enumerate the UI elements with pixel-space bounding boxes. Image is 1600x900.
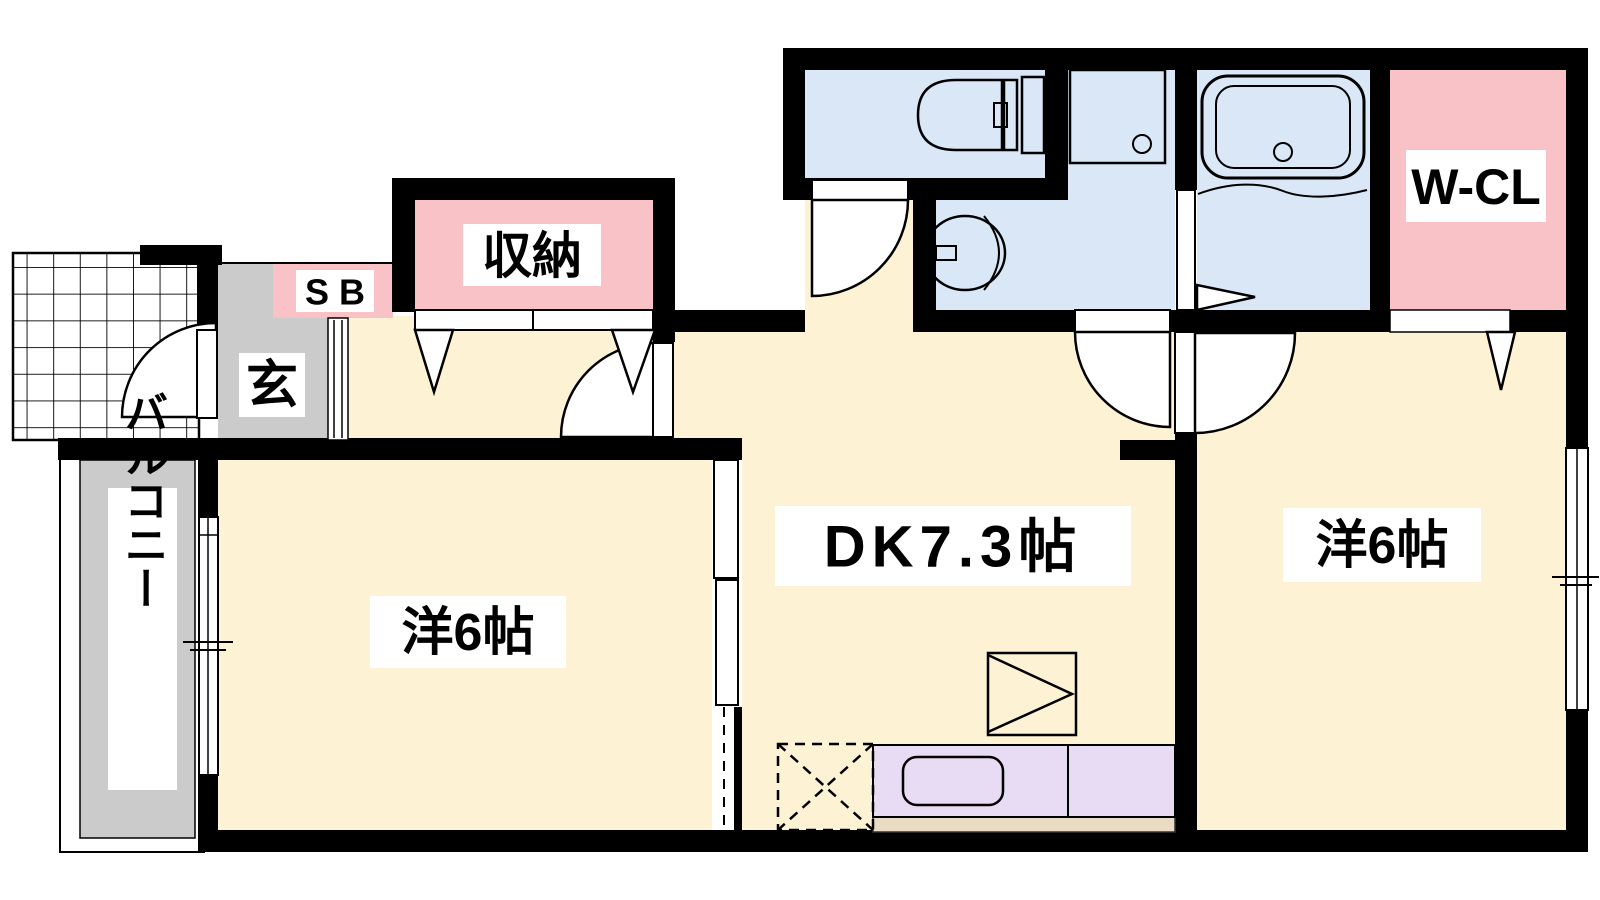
- dining-kitchen-label: DK7.3帖: [824, 515, 1082, 580]
- walk-in-closet-label: W-CL: [1411, 159, 1541, 215]
- entry-partition-door: [328, 318, 348, 440]
- wall-segment: [198, 775, 218, 832]
- wall-segment: [1045, 70, 1068, 178]
- balcony-label: バルコニー: [118, 390, 167, 610]
- wall-segment: [1120, 440, 1175, 460]
- wall-segment: [1175, 48, 1197, 190]
- wall-segment: [1175, 433, 1197, 832]
- wall-segment: [913, 310, 1075, 332]
- western-room-left-label: 洋6帖: [402, 604, 535, 662]
- wall-segment: [140, 245, 222, 265]
- wall-segment: [198, 830, 1588, 852]
- toilet-door-leaf: [812, 180, 908, 200]
- wall-segment: [392, 178, 675, 200]
- storage-label: 収納: [482, 228, 582, 284]
- wall-segment: [1510, 310, 1566, 332]
- hallway-floor: [348, 316, 1175, 442]
- entrance-door-leaf: [197, 330, 217, 418]
- floor-plan-page: 玄 SB 収納 バルコニー 洋6帖 DK7.3帖 洋6帖 W-CL: [0, 0, 1600, 900]
- hall-door-leaf: [653, 343, 673, 437]
- right-room-door-leaf: [1175, 332, 1195, 433]
- storage-bifold-door: [533, 310, 653, 330]
- bathroom-door-leaf: [1177, 190, 1195, 310]
- wall-segment: [734, 707, 742, 832]
- wall-segment: [392, 200, 415, 312]
- wall-segment: [198, 460, 218, 517]
- wall-segment: [1566, 70, 1588, 448]
- wall-segment: [1370, 70, 1390, 310]
- counter-edge: [873, 817, 1175, 832]
- entry-label: 玄: [246, 357, 298, 415]
- bathroom-floor: [1197, 70, 1370, 310]
- room-partition: [714, 460, 742, 832]
- storage-bifold-door: [415, 310, 533, 330]
- sliding-panel: [714, 460, 738, 578]
- sliding-panel: [716, 580, 738, 705]
- toilet-room-floor: [805, 70, 1045, 178]
- wall-segment: [783, 70, 805, 200]
- wall-segment: [653, 200, 675, 342]
- wall-segment: [653, 310, 805, 332]
- washroom-floor-upper: [1068, 70, 1175, 310]
- wall-segment: [1170, 310, 1390, 332]
- wall-segment: [197, 265, 218, 330]
- washroom-door-leaf: [1075, 310, 1170, 332]
- floor-plan: 玄 SB 収納 バルコニー 洋6帖 DK7.3帖 洋6帖 W-CL: [0, 0, 1600, 900]
- shoe-box-label: SB: [305, 272, 375, 313]
- western-room-right-label: 洋6帖: [1316, 517, 1449, 575]
- wcl-opening: [1390, 310, 1510, 332]
